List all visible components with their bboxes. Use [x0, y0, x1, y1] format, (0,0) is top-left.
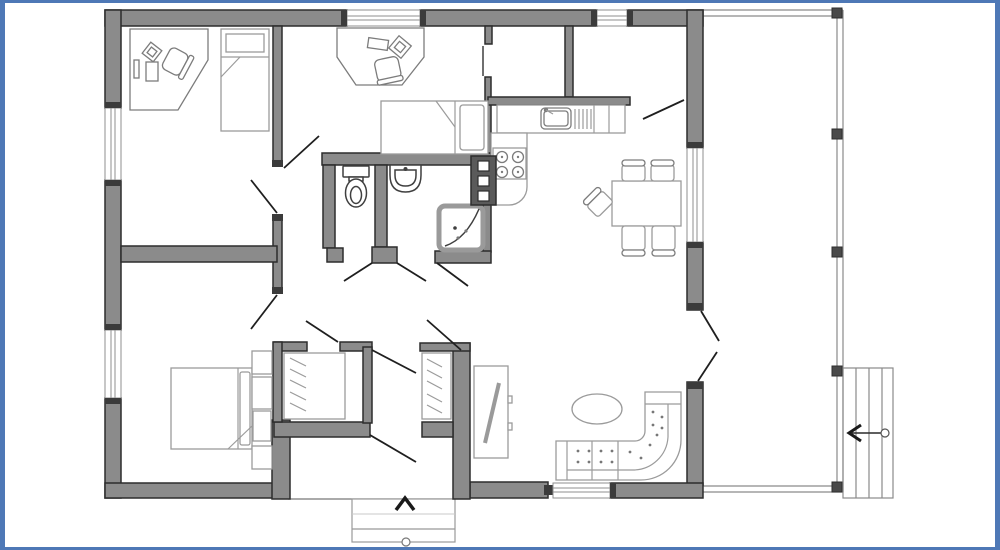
- wall-closet-stub: [485, 26, 492, 44]
- dining-chair: [622, 160, 645, 181]
- wall-top-2: [420, 10, 597, 26]
- dining-chair: [651, 160, 674, 181]
- wall-closet-divider: [363, 347, 372, 423]
- wall-wc-west: [323, 165, 335, 248]
- room-bathroom: [390, 165, 483, 250]
- wall-bottom-3: [610, 483, 703, 498]
- window-top-utility: [591, 10, 633, 26]
- room-bedroom-3: [171, 351, 272, 469]
- floor-plan-canvas: [0, 0, 1000, 550]
- room-kitchen: [471, 105, 625, 205]
- room-living: [474, 366, 681, 480]
- wall-right-2: [687, 242, 703, 310]
- wall-int-rooms-divider: [121, 246, 277, 262]
- room-bedroom-office-1: [130, 29, 269, 131]
- kitchen-sink: [541, 108, 571, 129]
- wall-wc-foot: [327, 248, 343, 262]
- door-utility: [643, 100, 684, 119]
- desk2-keyboard: [367, 38, 388, 51]
- wall-bath-pier: [372, 247, 397, 263]
- wall-bottom-1: [105, 483, 288, 498]
- door-bedroom3: [251, 295, 277, 329]
- wall-right-3: [687, 382, 703, 485]
- closet-b: [422, 353, 451, 419]
- deck: [703, 8, 893, 498]
- wall-left-1: [105, 10, 121, 108]
- floor-plan-svg: [0, 0, 1000, 550]
- door-deck-leaf-2: [698, 352, 717, 381]
- wall-left-2: [105, 180, 121, 330]
- shelf-column: [252, 351, 272, 469]
- window-left-bedroom1: [105, 102, 121, 186]
- tv-cabinet: [474, 366, 512, 458]
- stove: [493, 148, 526, 179]
- fridge-column: [471, 156, 496, 205]
- wall-south-closets-1: [274, 422, 370, 437]
- toilet: [343, 166, 369, 207]
- door-deck-leaf-1: [701, 311, 719, 341]
- door-closet-a: [306, 321, 338, 342]
- door-hall-kitchen: [437, 263, 468, 286]
- window-south-living: [553, 483, 616, 498]
- wall-kitchen-north: [488, 97, 630, 105]
- window-top-bedroom2: [341, 10, 426, 26]
- wall-bottom-2: [470, 482, 548, 498]
- deck-stairs: [843, 368, 893, 498]
- wall-wc-bath-divider: [375, 165, 387, 247]
- door-wc: [344, 263, 372, 281]
- dining-chair: [622, 226, 645, 256]
- wall-int-vert-a: [273, 26, 282, 166]
- room-dining: [582, 160, 681, 256]
- desk-tray: [134, 60, 139, 78]
- wall-pantry-divider: [565, 26, 573, 97]
- wall-right-1: [687, 10, 703, 148]
- corner-shower: [439, 206, 483, 250]
- entrance-steps: [288, 498, 455, 546]
- door-bedroom1: [251, 180, 277, 213]
- door-passage: [372, 350, 416, 373]
- window-east-dining: [687, 142, 703, 248]
- double-bed: [171, 368, 252, 449]
- wall-bedroom3-east: [273, 342, 282, 422]
- dining-chair: [582, 186, 613, 217]
- wall-south-closets-2: [422, 422, 453, 437]
- coffee-table: [572, 394, 622, 424]
- room-wc: [343, 166, 369, 207]
- wall-bath-south: [435, 251, 491, 263]
- washbasin: [390, 165, 421, 192]
- dining-chair: [652, 226, 675, 256]
- wall-bath-north: [322, 153, 491, 165]
- closet-a: [284, 353, 345, 419]
- single-bed-1: [221, 29, 269, 131]
- door-bedroom2: [284, 136, 319, 168]
- desk-paper: [146, 62, 158, 81]
- wall-top-1: [105, 10, 347, 26]
- dining-table: [612, 181, 681, 226]
- single-bed-2: [381, 101, 488, 154]
- door-bathroom: [397, 263, 426, 281]
- wall-entry-east: [453, 343, 470, 499]
- door-entry-inner: [370, 435, 416, 462]
- window-left-bedroom3: [105, 324, 121, 404]
- wall-closet-north-3: [420, 343, 470, 351]
- room-bedroom-2: [337, 28, 488, 154]
